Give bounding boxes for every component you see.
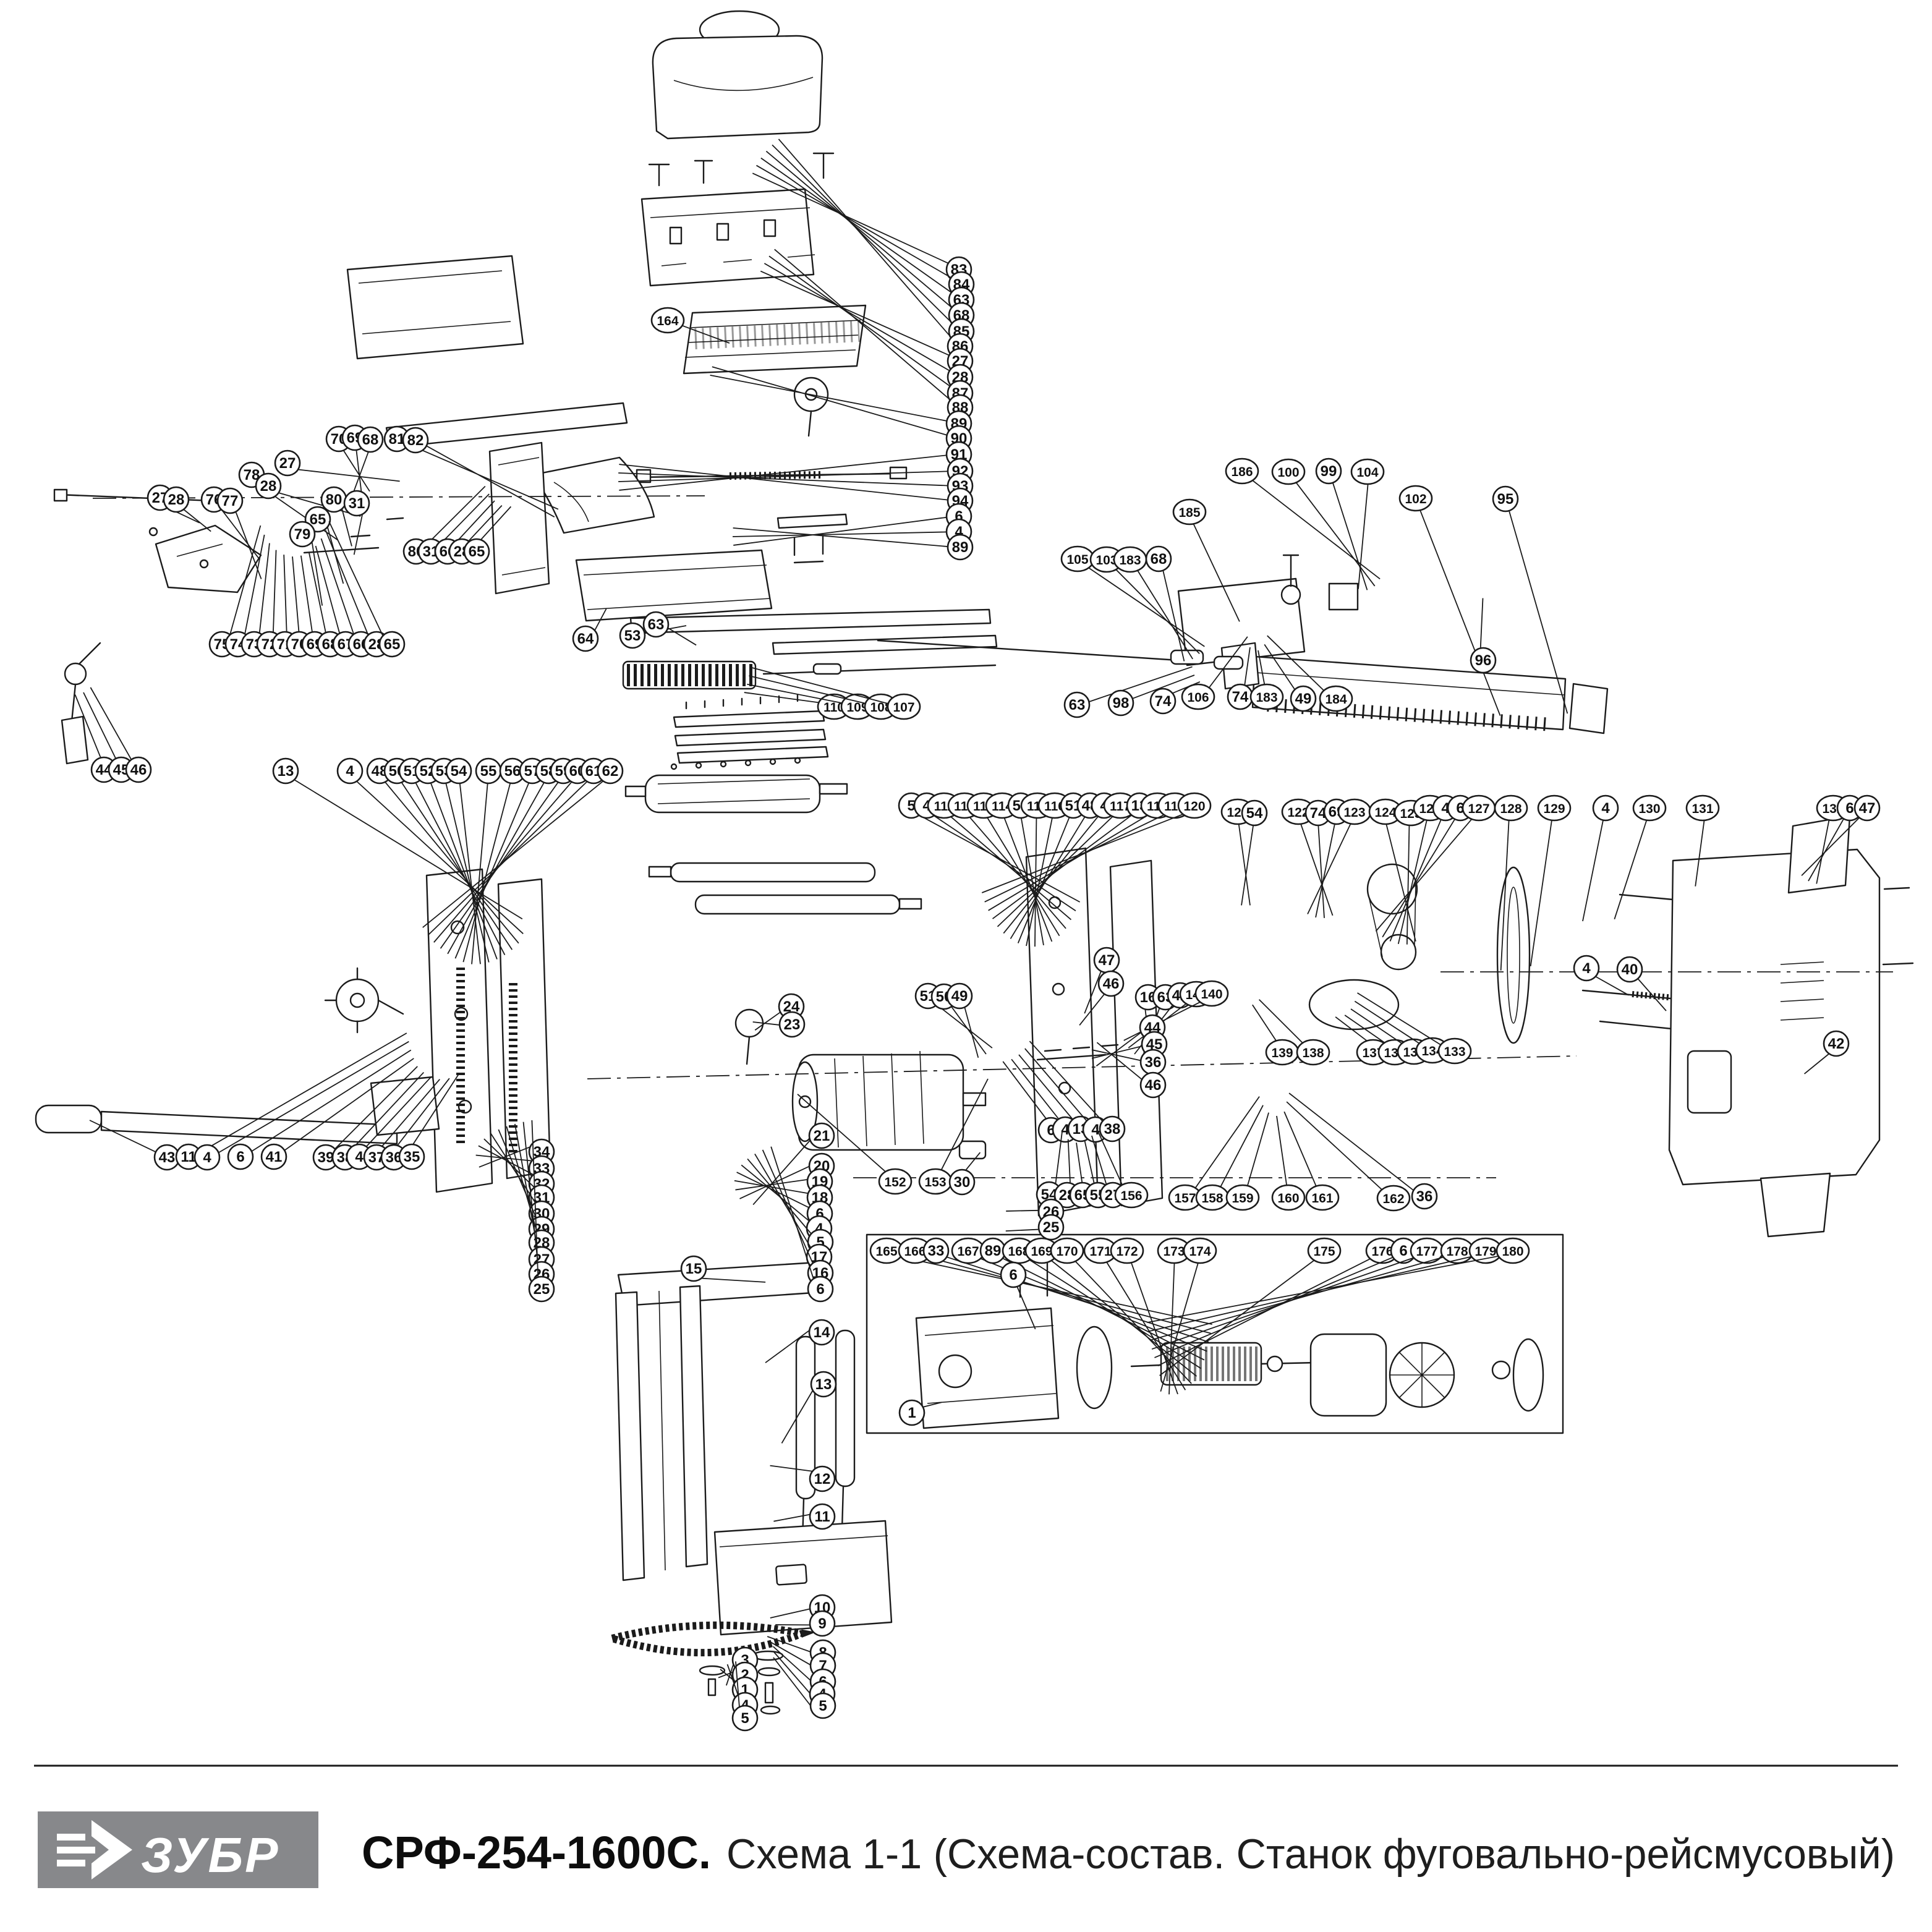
svg-text:124: 124	[1374, 806, 1396, 820]
svg-text:13: 13	[815, 1376, 832, 1393]
callout-90: 90	[712, 367, 971, 451]
svg-text:82: 82	[407, 432, 424, 449]
callout-27: 27	[275, 451, 400, 481]
callout-4: 4	[1583, 796, 1618, 921]
svg-text:4: 4	[346, 763, 354, 780]
svg-text:64: 64	[577, 631, 594, 647]
svg-text:173: 173	[1163, 1245, 1185, 1259]
callout-layer: 8384636885862728878889909192939464897069…	[75, 139, 1879, 1730]
svg-text:6: 6	[816, 1281, 824, 1298]
svg-text:4: 4	[1582, 960, 1591, 977]
gear-cluster	[1309, 864, 1695, 1043]
svg-text:169: 169	[1031, 1245, 1052, 1259]
svg-text:161: 161	[1311, 1191, 1333, 1206]
svg-text:120: 120	[1183, 799, 1205, 814]
svg-text:47: 47	[1099, 952, 1115, 969]
svg-text:123: 123	[1343, 806, 1365, 820]
callout-96: 96	[1471, 598, 1496, 673]
svg-text:9: 9	[818, 1615, 826, 1632]
svg-text:176: 176	[1371, 1245, 1393, 1259]
svg-text:54: 54	[451, 763, 467, 780]
svg-text:39: 39	[318, 1149, 334, 1166]
grille-panel	[684, 305, 866, 373]
callout-31: 31	[344, 491, 369, 555]
svg-text:131: 131	[1692, 802, 1713, 816]
svg-text:105: 105	[1066, 553, 1088, 567]
callout-159: 159	[1227, 1113, 1269, 1210]
svg-text:40: 40	[1622, 961, 1638, 978]
svg-text:46: 46	[1145, 1077, 1162, 1094]
callout-25: 25	[1006, 1215, 1063, 1240]
svg-text:74: 74	[1232, 689, 1249, 705]
parts-diagram: ЗУБР СРФ-254-1600С. Схема 1-1 (Схема-сос…	[0, 0, 1932, 1932]
svg-text:41: 41	[266, 1149, 283, 1165]
dust-hood	[642, 11, 833, 286]
svg-text:63: 63	[1069, 697, 1086, 713]
svg-text:164: 164	[657, 314, 678, 328]
svg-text:49: 49	[1295, 691, 1312, 707]
svg-text:89: 89	[985, 1243, 1002, 1259]
feed-rollers	[649, 863, 921, 914]
svg-text:98: 98	[1113, 695, 1130, 712]
svg-text:138: 138	[1302, 1046, 1324, 1060]
svg-text:33: 33	[928, 1243, 945, 1259]
svg-text:68: 68	[1151, 551, 1167, 568]
svg-text:74: 74	[1155, 693, 1172, 710]
svg-text:65: 65	[469, 543, 485, 560]
svg-text:55: 55	[480, 763, 497, 780]
svg-text:28: 28	[168, 492, 185, 508]
svg-text:99: 99	[1321, 463, 1337, 480]
fence-plate-upper	[347, 256, 654, 594]
cutterhead	[626, 758, 847, 812]
svg-text:49: 49	[951, 988, 968, 1005]
svg-text:4: 4	[1091, 1121, 1100, 1138]
svg-text:42: 42	[1828, 1036, 1845, 1052]
svg-text:23: 23	[784, 1016, 801, 1033]
callout-68: 68	[1146, 547, 1184, 662]
brush-roller	[623, 662, 995, 689]
svg-text:62: 62	[602, 763, 619, 780]
footer-subtitle: Схема 1-1 (Схема-состав. Станок фуговаль…	[726, 1831, 1895, 1878]
svg-text:133: 133	[1444, 1045, 1465, 1059]
left-frame	[325, 869, 550, 1192]
svg-text:178: 178	[1446, 1245, 1468, 1259]
svg-text:96: 96	[1475, 652, 1492, 669]
svg-text:77: 77	[222, 493, 239, 509]
svg-text:186: 186	[1231, 465, 1253, 479]
svg-text:177: 177	[1416, 1245, 1437, 1259]
svg-text:36: 36	[1416, 1188, 1433, 1205]
svg-text:158: 158	[1201, 1191, 1223, 1206]
stand	[612, 1262, 892, 1714]
svg-text:100: 100	[1277, 466, 1299, 480]
svg-text:4: 4	[355, 1149, 364, 1165]
svg-text:128: 128	[1500, 802, 1521, 816]
svg-text:31: 31	[349, 495, 365, 512]
svg-text:68: 68	[362, 432, 379, 448]
svg-text:130: 130	[1638, 802, 1660, 816]
svg-text:5: 5	[741, 1710, 749, 1727]
svg-text:107: 107	[893, 700, 914, 715]
center-axes	[93, 496, 1893, 1178]
callout-162: 162	[1287, 1102, 1410, 1211]
svg-text:139: 139	[1271, 1046, 1293, 1060]
svg-text:56: 56	[504, 763, 521, 780]
svg-text:46: 46	[1103, 976, 1120, 992]
svg-text:27: 27	[279, 455, 296, 472]
svg-text:167: 167	[957, 1245, 979, 1259]
svg-text:89: 89	[952, 539, 969, 556]
svg-text:95: 95	[1497, 491, 1514, 508]
svg-text:36: 36	[1145, 1054, 1162, 1071]
callout-130: 130	[1614, 796, 1666, 919]
svg-text:153: 153	[924, 1175, 946, 1189]
svg-text:159: 159	[1232, 1191, 1253, 1206]
svg-text:171: 171	[1089, 1245, 1111, 1259]
svg-text:166: 166	[904, 1245, 926, 1259]
svg-text:162: 162	[1382, 1192, 1404, 1206]
center-frame	[960, 848, 1162, 1215]
callout-129: 129	[1531, 796, 1570, 966]
svg-text:4: 4	[1601, 800, 1610, 817]
svg-text:38: 38	[1104, 1121, 1121, 1138]
footer-model: СРФ-254-1600С.	[362, 1827, 711, 1878]
svg-text:174: 174	[1189, 1245, 1211, 1259]
svg-text:25: 25	[534, 1281, 550, 1298]
svg-text:1: 1	[908, 1405, 916, 1421]
svg-text:11: 11	[814, 1509, 830, 1525]
svg-text:165: 165	[875, 1245, 897, 1259]
svg-text:46: 46	[130, 762, 147, 778]
svg-text:53: 53	[624, 628, 641, 644]
left-table	[36, 1010, 763, 1144]
svg-text:54: 54	[1246, 805, 1263, 822]
svg-text:21: 21	[814, 1128, 830, 1144]
svg-text:102: 102	[1405, 492, 1426, 506]
svg-text:65: 65	[384, 636, 401, 653]
callout-49: 49	[947, 984, 978, 1058]
svg-text:104: 104	[1356, 466, 1378, 480]
svg-text:47: 47	[1859, 800, 1876, 817]
svg-text:156: 156	[1120, 1189, 1142, 1203]
svg-text:160: 160	[1277, 1191, 1299, 1206]
svg-text:14: 14	[814, 1324, 830, 1341]
svg-text:80: 80	[326, 492, 343, 508]
right-housing	[1669, 816, 1913, 1236]
svg-text:184: 184	[1325, 692, 1347, 707]
svg-text:106: 106	[1187, 691, 1209, 705]
svg-text:12: 12	[814, 1471, 831, 1487]
svg-text:183: 183	[1256, 691, 1277, 705]
brand-logo-text: ЗУБР	[141, 1828, 280, 1883]
exploded-parts	[36, 11, 1913, 1714]
svg-text:30: 30	[954, 1174, 971, 1191]
svg-text:28: 28	[260, 478, 277, 495]
callout-65: 65	[305, 507, 343, 584]
svg-text:6: 6	[1845, 800, 1853, 817]
svg-text:4: 4	[203, 1149, 211, 1166]
svg-text:129: 129	[1543, 802, 1565, 816]
knife-bars	[674, 695, 828, 763]
svg-text:172: 172	[1116, 1245, 1138, 1259]
callout-40: 40	[1617, 957, 1666, 1011]
svg-text:13: 13	[278, 763, 294, 780]
callout-6: 6	[733, 504, 971, 545]
svg-text:152: 152	[884, 1175, 906, 1189]
callout-139: 139	[1253, 1005, 1298, 1065]
svg-text:5: 5	[819, 1698, 827, 1714]
svg-text:127: 127	[1468, 802, 1489, 816]
callout-160: 160	[1272, 1116, 1304, 1210]
svg-text:25: 25	[1043, 1219, 1060, 1236]
svg-text:170: 170	[1056, 1245, 1078, 1259]
svg-text:35: 35	[404, 1149, 420, 1165]
svg-text:15: 15	[686, 1261, 702, 1277]
svg-text:63: 63	[648, 616, 665, 633]
svg-text:180: 180	[1502, 1245, 1523, 1259]
svg-text:79: 79	[294, 526, 311, 543]
svg-text:6: 6	[236, 1149, 244, 1165]
svg-text:183: 183	[1119, 553, 1141, 568]
svg-text:140: 140	[1201, 987, 1222, 1002]
svg-text:185: 185	[1178, 506, 1200, 520]
callout-54: 54	[1241, 801, 1267, 905]
svg-text:6: 6	[1399, 1243, 1407, 1259]
svg-text:43: 43	[159, 1149, 176, 1166]
footer: ЗУБР СРФ-254-1600С. Схема 1-1 (Схема-сос…	[34, 1766, 1898, 1888]
svg-text:6: 6	[1009, 1267, 1017, 1283]
svg-text:175: 175	[1313, 1245, 1335, 1259]
svg-text:157: 157	[1174, 1191, 1196, 1206]
